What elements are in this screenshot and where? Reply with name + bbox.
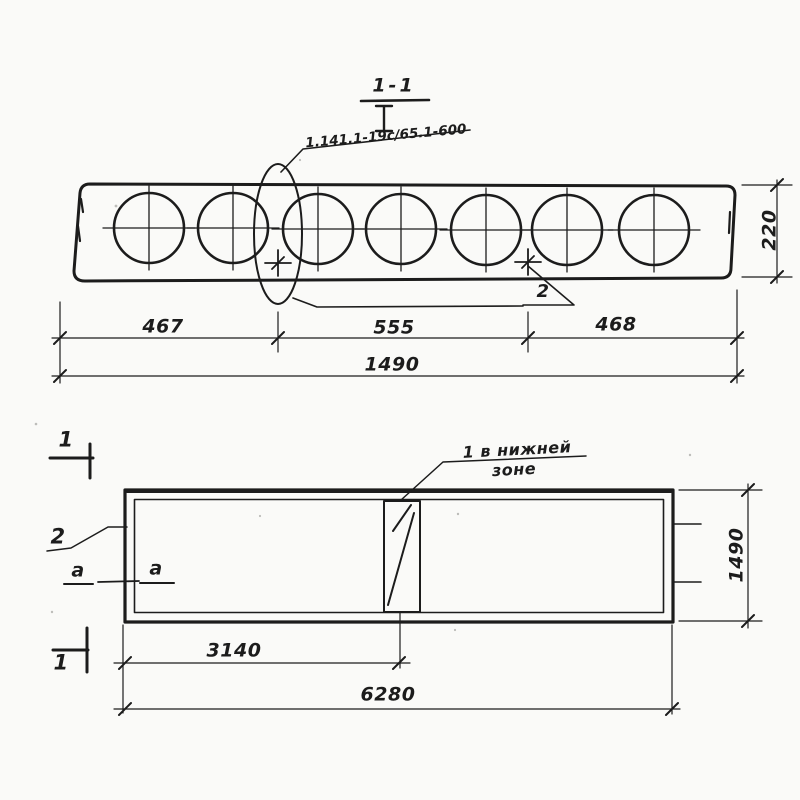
dim-468-label: 468	[595, 316, 636, 335]
plan-view-linework	[47, 444, 762, 715]
item2-marker	[265, 250, 291, 276]
right-edge-ticks	[673, 524, 701, 582]
axis-a-label-inner: a	[149, 560, 162, 579]
item2-marker	[515, 249, 541, 275]
cut-mark-top-label: 1	[58, 430, 73, 451]
dim-467-label: 467	[142, 318, 183, 337]
section-title-underline	[361, 100, 429, 101]
section-title: 1-1	[372, 77, 415, 96]
drawing-linework	[0, 0, 800, 800]
axis-a-label-outer: a	[71, 562, 84, 581]
dim-1490-section-label: 1490	[365, 356, 420, 375]
dim-1490-plan-label: 1490	[728, 528, 747, 583]
drawing-sheet: 1-1 1.141.1-19с/65.1-600 2 467 555 468 1…	[0, 0, 800, 800]
panel-section-outline	[74, 184, 735, 281]
panel-right-edge-dash	[729, 212, 730, 233]
item2-label-section: 2	[536, 283, 549, 301]
dim-6280-label: 6280	[361, 686, 416, 705]
item2-leader	[293, 266, 574, 307]
edge-item2-label: 2	[50, 527, 65, 548]
extension-lines	[679, 490, 762, 621]
cut-mark-bottom-label: 1	[53, 653, 68, 674]
rebar-note-line2: зоне	[492, 461, 537, 479]
plan-width-dimension	[679, 484, 762, 628]
void-crosshairs	[103, 186, 700, 272]
dim-220-label: 220	[761, 209, 780, 250]
dim-3140-label: 3140	[207, 642, 262, 661]
axis-a-edge-tick	[98, 581, 139, 582]
section-view-linework	[52, 100, 792, 383]
dim-555-label: 555	[373, 319, 414, 338]
